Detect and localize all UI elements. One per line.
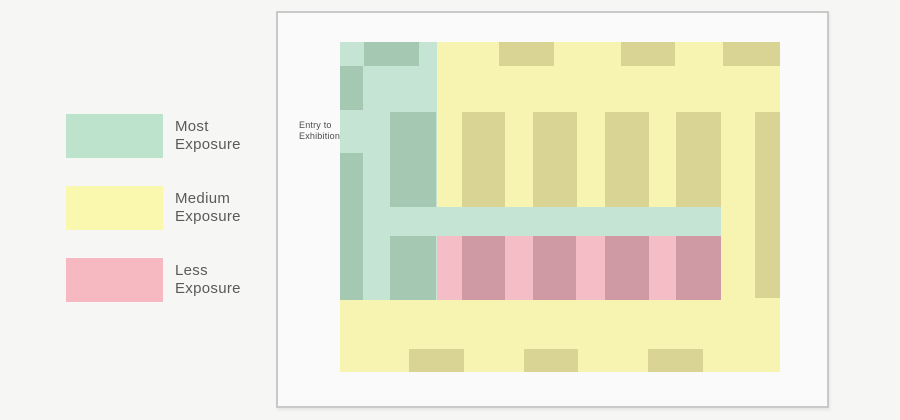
medium-exposure-block (605, 112, 649, 207)
legend-label-line: Medium (175, 190, 241, 208)
floorplan (340, 42, 780, 372)
most-exposure-block (364, 42, 419, 66)
medium-exposure-label: Medium Exposure (175, 190, 241, 226)
legend-label-line: Less (175, 262, 241, 280)
entry-label-line: Exhibition (299, 131, 343, 142)
most-exposure-block (390, 236, 436, 300)
medium-exposure-block (676, 112, 721, 207)
most-exposure-block (390, 112, 436, 207)
less-exposure-block (533, 236, 576, 300)
less-exposure-block (462, 236, 505, 300)
legend-item-most: Most Exposure (66, 114, 241, 158)
medium-exposure-swatch (66, 186, 163, 230)
medium-exposure-block (524, 349, 578, 372)
less-exposure-block (605, 236, 649, 300)
medium-exposure-block (621, 42, 675, 66)
less-exposure-block (676, 236, 721, 300)
entry-label-line: Entry to (299, 120, 343, 131)
legend-item-medium: Medium Exposure (66, 186, 241, 230)
legend-label-line: Exposure (175, 208, 241, 226)
page: { "page": { "bg": "#f6f6f4" }, "legend":… (0, 0, 900, 420)
medium-exposure-block (755, 112, 780, 298)
most-exposure-label: Most Exposure (175, 118, 241, 154)
legend-label-line: Exposure (175, 136, 241, 154)
less-exposure-swatch (66, 258, 163, 302)
medium-exposure-block (533, 112, 577, 207)
medium-exposure-block (723, 42, 780, 66)
most-exposure-zone (437, 207, 721, 236)
medium-exposure-block (648, 349, 703, 372)
most-exposure-block (340, 153, 363, 300)
legend-item-less: Less Exposure (66, 258, 241, 302)
exposure-legend: Most Exposure Medium Exposure Less Expos… (66, 114, 241, 330)
legend-label-line: Exposure (175, 280, 241, 298)
most-exposure-swatch (66, 114, 163, 158)
medium-exposure-block (462, 112, 505, 207)
entry-label: Entry to Exhibition (299, 120, 343, 141)
less-exposure-label: Less Exposure (175, 262, 241, 298)
most-exposure-block (340, 66, 363, 110)
medium-exposure-block (499, 42, 554, 66)
medium-exposure-block (409, 349, 464, 372)
legend-label-line: Most (175, 118, 241, 136)
